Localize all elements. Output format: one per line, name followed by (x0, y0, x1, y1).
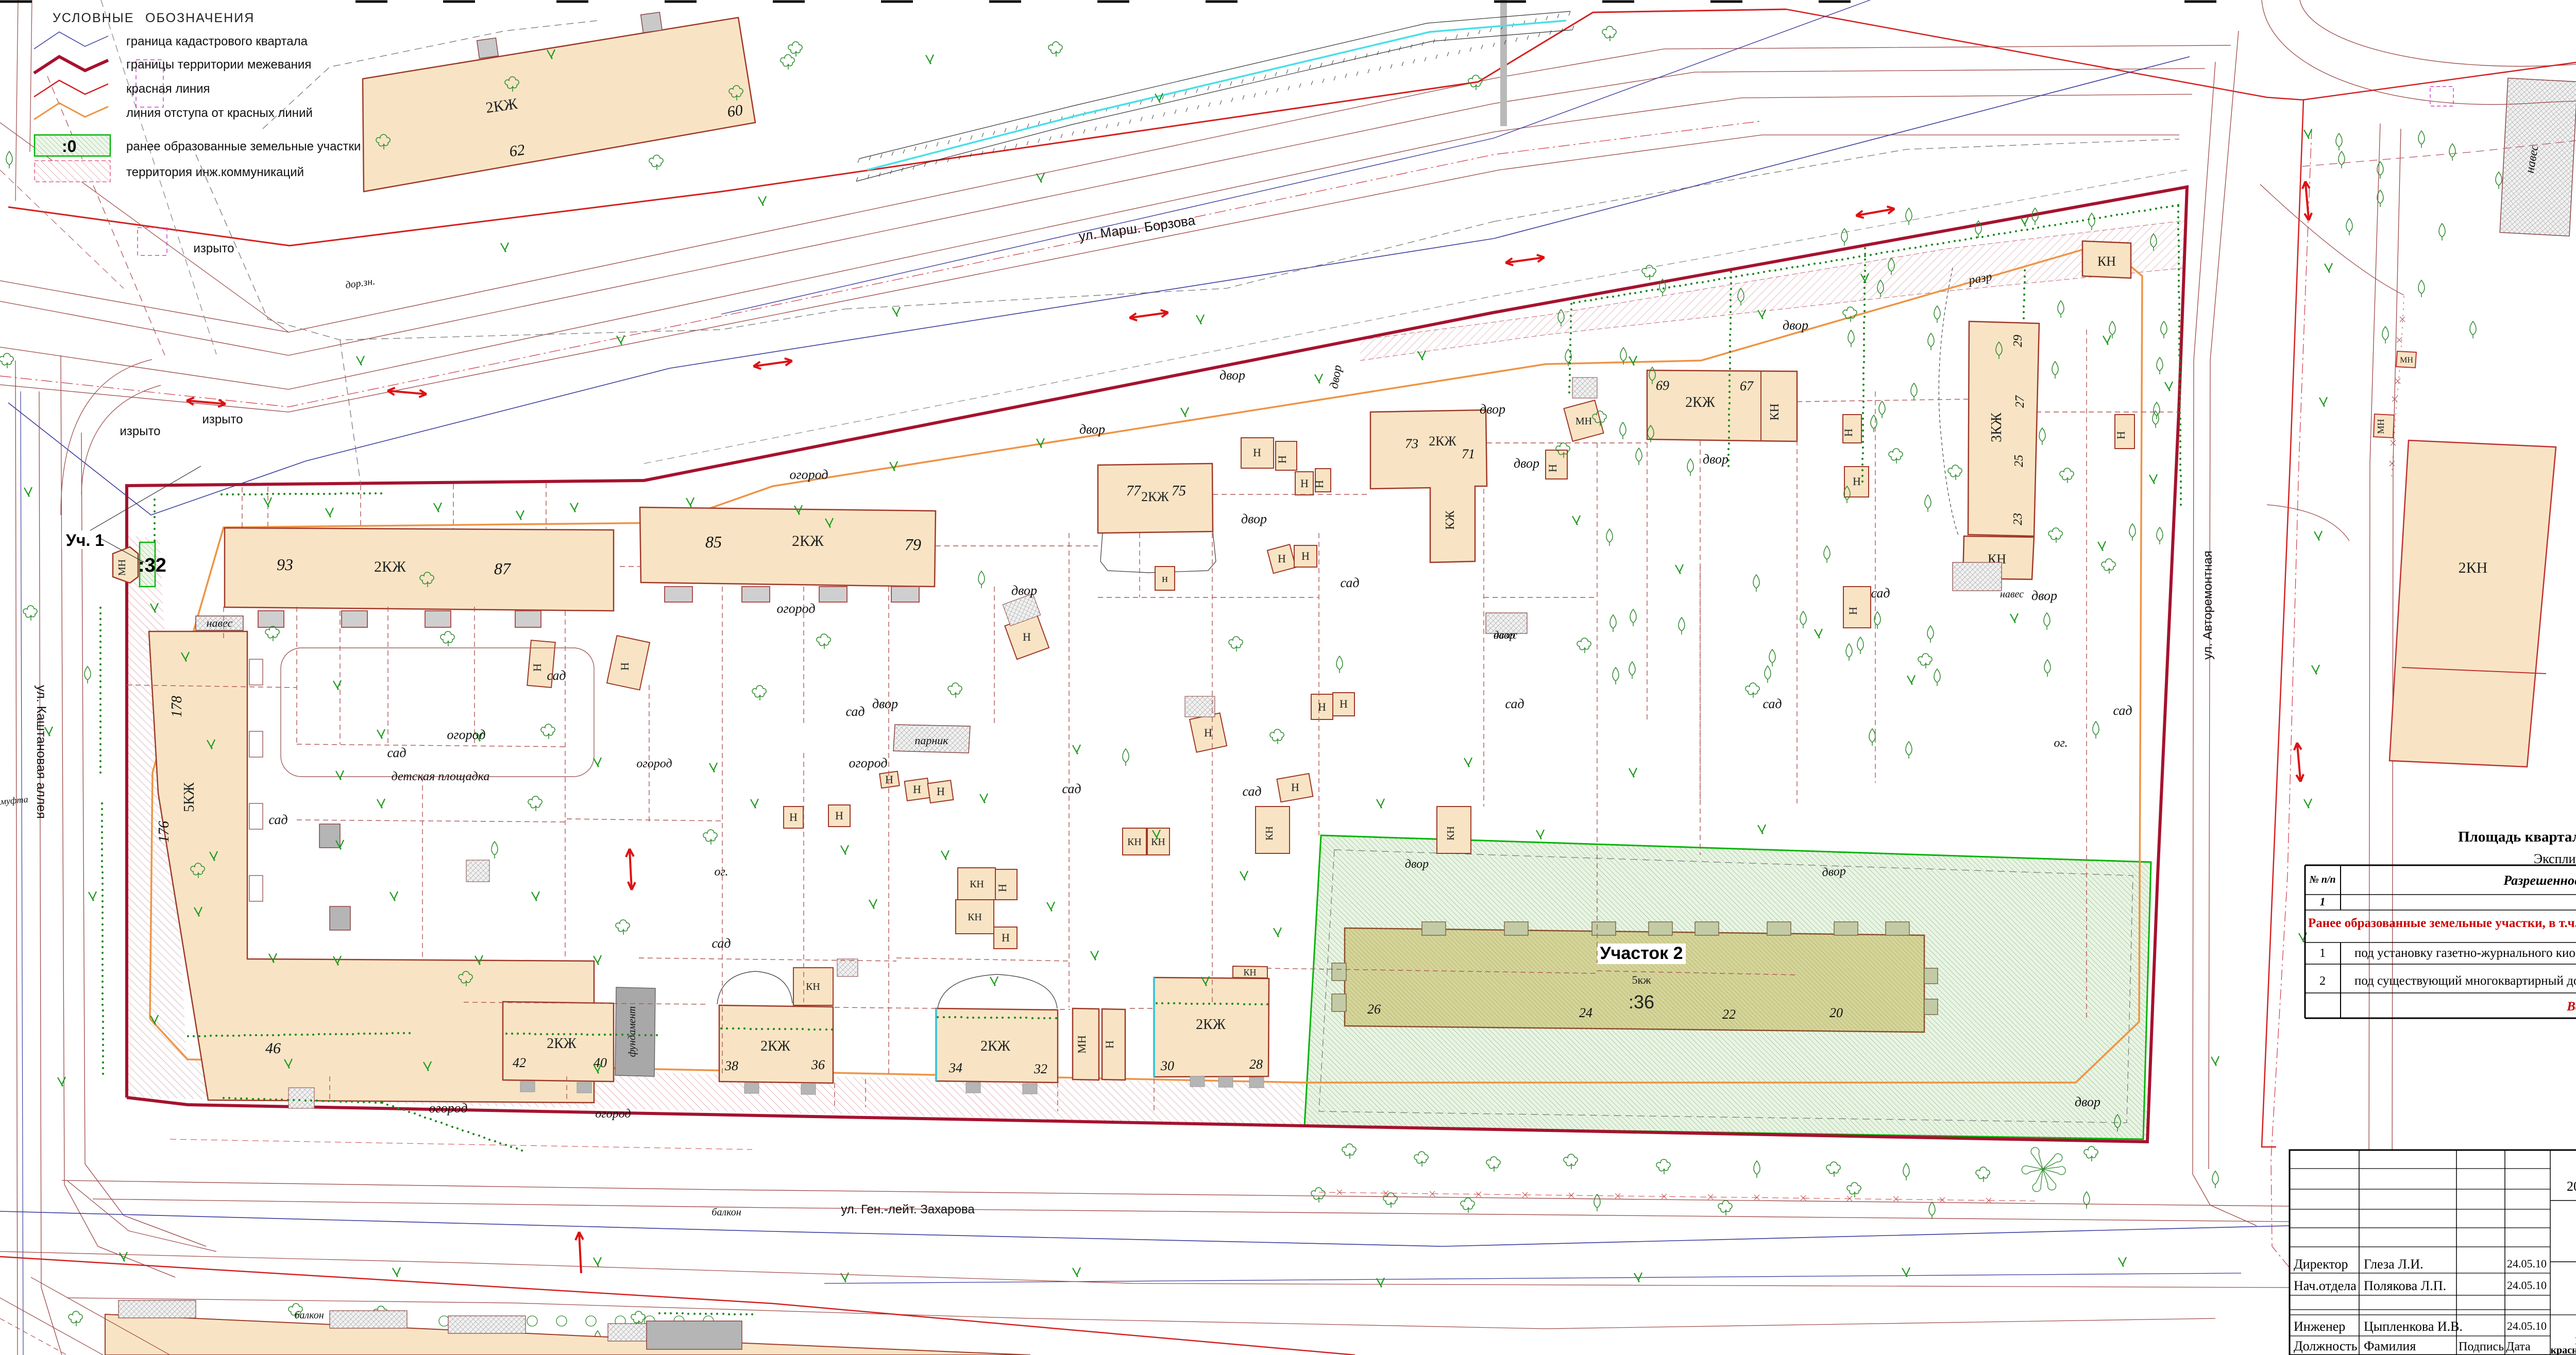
svg-text:Директор: Директор (2294, 1257, 2348, 1272)
svg-text:граница кадастрового квартала: граница кадастрового квартала (126, 35, 308, 48)
svg-text:сад: сад (1242, 784, 1261, 799)
svg-text:Разрешенное использование: Разрешенное использование (2503, 873, 2576, 888)
svg-text:24.05.10: 24.05.10 (2507, 1257, 2547, 1270)
svg-text:Дата: Дата (2506, 1340, 2531, 1353)
svg-text:МН: МН (1075, 1035, 1088, 1054)
svg-text:22: 22 (1722, 1007, 1736, 1022)
svg-text:77: 77 (1126, 483, 1141, 499)
svg-text:Подпись: Подпись (2459, 1340, 2504, 1353)
svg-text:двор: двор (1703, 452, 1728, 467)
svg-text:двор: двор (872, 696, 898, 711)
svg-text:огород: огород (777, 601, 816, 616)
svg-text:сад: сад (1871, 586, 1890, 601)
svg-text:69: 69 (1656, 378, 1669, 393)
svg-text:двор: двор (1219, 368, 1245, 383)
svg-text:КН: КН (1243, 967, 1256, 977)
svg-text:КН: КН (1264, 826, 1275, 841)
svg-text:сад: сад (268, 812, 287, 827)
svg-text:парник: парник (914, 734, 948, 747)
svg-text:Глеза Л.И.: Глеза Л.И. (2364, 1257, 2424, 1272)
svg-text:фундамент: фундамент (626, 1006, 638, 1057)
svg-text:24: 24 (1579, 1005, 1592, 1020)
svg-text:Н: Н (2114, 431, 2127, 439)
svg-text:огород: огород (790, 467, 828, 482)
svg-text:79: 79 (905, 535, 921, 554)
svg-text:сад: сад (1062, 781, 1081, 796)
svg-text:Н: Н (531, 663, 544, 672)
svg-text:27: 27 (2013, 395, 2027, 408)
svg-text:Фамилия: Фамилия (2364, 1339, 2416, 1353)
svg-text:2: 2 (2319, 974, 2326, 988)
svg-text:территория инж.коммуникаций: территория инж.коммуникаций (126, 165, 304, 179)
svg-text:балкон: балкон (294, 1310, 324, 1321)
svg-text:двор: двор (1822, 865, 1846, 879)
svg-text:ог.: ог. (714, 865, 728, 879)
svg-text:Площадь квартала в границах кр: Площадь квартала в границах красных лини… (2458, 829, 2576, 845)
svg-text:КН: КН (1151, 836, 1165, 848)
svg-text:23: 23 (2011, 513, 2025, 525)
svg-text:34: 34 (948, 1060, 962, 1075)
svg-text:КН: КН (1445, 826, 1456, 841)
svg-text:30: 30 (1160, 1058, 1174, 1073)
svg-text:1: 1 (2319, 947, 2326, 960)
svg-text:Н: Н (789, 811, 798, 824)
svg-text:навес: навес (207, 616, 233, 629)
svg-text:Н: Н (618, 662, 631, 671)
svg-text:2КЖ: 2КЖ (547, 1036, 577, 1052)
svg-text:Н: Н (1313, 480, 1326, 488)
svg-text:85: 85 (705, 533, 722, 551)
svg-text:двор: двор (1011, 583, 1037, 598)
svg-text:изрыто: изрыто (193, 242, 234, 255)
svg-text:Должность: Должность (2294, 1339, 2358, 1353)
svg-text:Н: Н (835, 809, 843, 822)
svg-text:Н: Н (937, 785, 945, 798)
svg-text:МН: МН (1575, 416, 1592, 427)
svg-text::36: :36 (1629, 991, 1654, 1013)
svg-text:Участок 2: Участок 2 (1600, 944, 1683, 963)
svg-text:ул. Каштановая аллея: ул. Каштановая аллея (34, 685, 48, 819)
svg-text:Н: Н (1253, 446, 1261, 459)
svg-text:Инженер: Инженер (2294, 1319, 2345, 1334)
svg-text:двор: двор (1405, 857, 1429, 871)
svg-text:ул. Авторемонтная: ул. Авторемонтная (2201, 551, 2215, 660)
svg-text:двор: двор (1480, 402, 1505, 417)
svg-text:МН: МН (2376, 419, 2386, 434)
svg-text:26: 26 (1367, 1002, 1381, 1017)
svg-text:ул. Ген.-лейт. Захарова: ул. Ген.-лейт. Захарова (841, 1203, 975, 1216)
svg-text:огород: огород (429, 1101, 468, 1116)
svg-text:36: 36 (811, 1057, 825, 1072)
svg-text:Нач.отдела: Нач.отдела (2294, 1278, 2357, 1293)
svg-text:красных линий и элементами пла: красных линий и элементами планировочных… (2550, 1345, 2576, 1355)
svg-text:н: н (1162, 572, 1168, 585)
svg-text:КН: КН (970, 879, 984, 890)
svg-text:ог.: ог. (2054, 736, 2067, 750)
svg-text:28: 28 (1249, 1057, 1263, 1072)
svg-text:КН: КН (968, 912, 982, 923)
svg-text:Н: Н (913, 783, 921, 796)
svg-text:Н: Н (1853, 475, 1861, 488)
svg-text:Н: Н (1023, 630, 1031, 643)
svg-text:2КЖ: 2КЖ (980, 1038, 1011, 1054)
svg-text:КН: КН (2097, 254, 2116, 269)
svg-text:Ранее образованные земельные у: Ранее образованные земельные участки, в … (2308, 916, 2576, 930)
svg-text:Н: Н (1103, 1040, 1116, 1049)
svg-text:67: 67 (1740, 379, 1754, 393)
svg-text:сад: сад (1340, 575, 1359, 590)
svg-text:двор: двор (1494, 628, 1515, 641)
svg-text:балкон: балкон (711, 1207, 741, 1218)
svg-text:МН: МН (2400, 356, 2413, 365)
svg-text:Н: Н (1546, 464, 1559, 472)
svg-text:сад: сад (1762, 696, 1782, 711)
svg-text:ОБОЗНАЧЕНИЯ: ОБОЗНАЧЕНИЯ (145, 11, 255, 25)
svg-text:Н: Н (1002, 931, 1010, 944)
svg-text:38: 38 (724, 1058, 738, 1073)
svg-text:сад: сад (547, 668, 566, 683)
svg-text:2КН: 2КН (2459, 559, 2488, 576)
svg-text:20: 20 (1829, 1005, 1843, 1020)
svg-text:5КЖ: 5КЖ (181, 782, 197, 812)
svg-text:87: 87 (494, 559, 512, 578)
svg-text:Н: Н (996, 884, 1009, 892)
svg-text:двор: двор (1783, 318, 1808, 333)
svg-text:2КЖ: 2КЖ (374, 558, 406, 575)
svg-text:огород: огород (636, 757, 672, 770)
svg-text:двор: двор (1514, 456, 1539, 471)
svg-text:178: 178 (169, 696, 185, 717)
svg-text:Н: Н (1278, 552, 1286, 565)
svg-text:2КЖ: 2КЖ (792, 533, 824, 550)
svg-text:Н: Н (1291, 781, 1299, 794)
svg-text:62: 62 (509, 141, 526, 160)
svg-text:3КЖ: 3КЖ (1989, 412, 2005, 442)
svg-text:УСЛОВНЫЕ: УСЛОВНЫЕ (53, 11, 134, 25)
svg-text:2КЖ: 2КЖ (760, 1038, 791, 1054)
svg-text:огород: огород (849, 756, 888, 770)
svg-text:двор: двор (2075, 1094, 2100, 1109)
svg-text:под установку газетно-журнальн: под установку газетно-журнального киоска (2354, 946, 2576, 960)
svg-text:линия отступа от красных линий: линия отступа от красных линий (126, 106, 313, 120)
svg-text:навес: навес (2000, 589, 2024, 600)
svg-text:КЖ: КЖ (1444, 510, 1457, 530)
svg-text:Н: Н (1276, 455, 1289, 464)
svg-text:сад: сад (711, 936, 731, 951)
svg-text:КН: КН (1768, 403, 1782, 420)
svg-text:29: 29 (2011, 335, 2025, 347)
svg-text:Н: Н (885, 773, 893, 786)
svg-text:изрыто: изрыто (120, 424, 160, 438)
svg-text:Н: Н (1842, 428, 1855, 437)
svg-text::32: :32 (138, 555, 166, 576)
svg-text:изрыто: изрыто (202, 413, 243, 426)
svg-text:МН: МН (116, 559, 128, 576)
svg-text:сад: сад (387, 745, 406, 760)
svg-text:детская площадка: детская площадка (392, 770, 490, 783)
svg-text:двор: двор (1241, 511, 1267, 526)
svg-text:огород: огород (447, 727, 486, 742)
svg-text:Н: Н (1301, 550, 1310, 562)
svg-text:25: 25 (2012, 455, 2026, 467)
svg-text:двор: двор (2031, 588, 2057, 603)
svg-text:под существующий многоквартирн: под существующий многоквартирный дом (2354, 974, 2576, 988)
svg-text:Экспликация земельных участков: Экспликация земельных участков (2534, 851, 2576, 866)
svg-text:сад: сад (2113, 703, 2132, 718)
svg-text:2КЖ: 2КЖ (1196, 1017, 1226, 1033)
svg-text:2КЖ: 2КЖ (1141, 489, 1169, 504)
svg-text:5кж: 5кж (1632, 973, 1652, 986)
svg-text:красная линия: красная линия (126, 82, 210, 96)
svg-text:Н: Н (1846, 607, 1859, 615)
svg-text:1: 1 (2320, 895, 2326, 908)
svg-text:сад: сад (845, 704, 865, 719)
svg-text:93: 93 (277, 555, 293, 574)
svg-text:24.05.10: 24.05.10 (2507, 1319, 2547, 1332)
svg-text:2010: 2010 (2567, 1179, 2576, 1194)
svg-text:73: 73 (1405, 436, 1418, 451)
svg-text:№ п/п: № п/п (2309, 874, 2335, 885)
svg-text:границы территории межевания: границы территории межевания (126, 58, 311, 72)
svg-text::0: :0 (62, 137, 76, 156)
svg-text:Н: Н (1340, 697, 1348, 710)
svg-text:71: 71 (1462, 447, 1475, 461)
svg-text:сад: сад (1505, 696, 1524, 711)
svg-text:42: 42 (513, 1055, 526, 1070)
svg-text:Полякова Л.П.: Полякова Л.П. (2364, 1278, 2446, 1293)
svg-text:2КЖ: 2КЖ (1685, 395, 1716, 410)
svg-text:Н: Н (1300, 477, 1309, 490)
svg-text:2КЖ: 2КЖ (1429, 434, 1456, 449)
svg-text:46: 46 (265, 1040, 281, 1057)
svg-text:ранее образованные земельные у: ранее образованные земельные участки (126, 140, 361, 153)
svg-text:КН: КН (806, 981, 820, 992)
svg-text:24.05.10: 24.05.10 (2507, 1279, 2547, 1292)
svg-text:176: 176 (156, 821, 172, 843)
svg-text:Н: Н (1204, 726, 1212, 739)
svg-text:75: 75 (1172, 483, 1186, 499)
svg-text:60: 60 (726, 101, 744, 121)
svg-text:32: 32 (1033, 1061, 1047, 1076)
svg-text:огород: огород (595, 1107, 631, 1121)
svg-text:Всего ранее образованных земел: Всего ранее образованных земельных участ… (2566, 1000, 2576, 1014)
svg-text:двор: двор (1079, 422, 1105, 437)
svg-text:КН: КН (1127, 836, 1142, 848)
svg-text:Уч. 1: Уч. 1 (66, 531, 104, 550)
svg-text:Цыпленкова И.В.: Цыпленкова И.В. (2364, 1319, 2463, 1334)
